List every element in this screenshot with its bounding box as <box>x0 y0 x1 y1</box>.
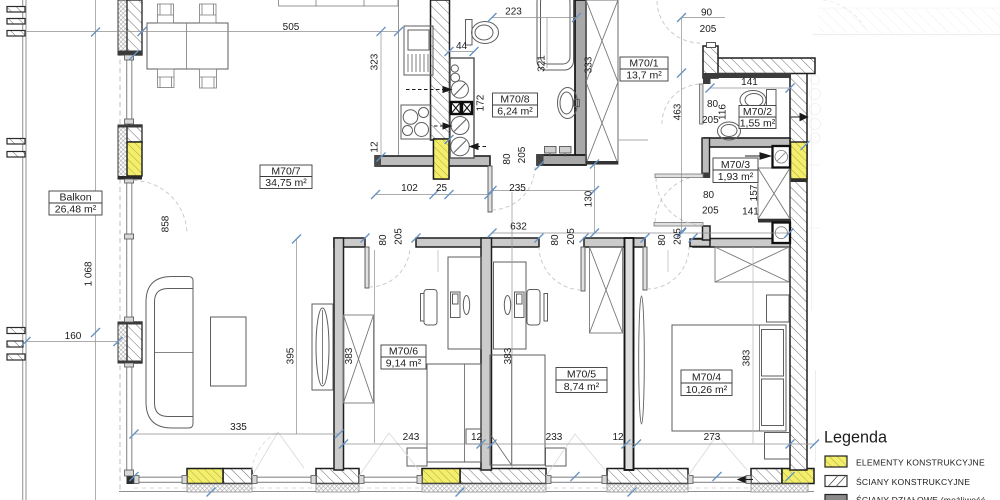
svg-text:205: 205 <box>517 146 528 163</box>
svg-text:M70/6: M70/6 <box>389 346 418 358</box>
svg-text:1,55 m²: 1,55 m² <box>740 118 776 130</box>
svg-text:505: 505 <box>283 22 300 33</box>
svg-text:ELEMENTY KONSTRUKCYJNE: ELEMENTY KONSTRUKCYJNE <box>856 458 985 468</box>
svg-text:9,14 m²: 9,14 m² <box>386 358 422 370</box>
svg-text:M70/1: M70/1 <box>629 58 658 70</box>
svg-text:116: 116 <box>718 104 729 120</box>
svg-text:10,26 m²: 10,26 m² <box>686 384 728 396</box>
svg-text:M70/7: M70/7 <box>271 166 300 178</box>
svg-text:34,75 m²: 34,75 m² <box>265 177 307 189</box>
svg-text:1,93 m²: 1,93 m² <box>718 171 754 183</box>
svg-text:273: 273 <box>704 432 721 443</box>
svg-text:172: 172 <box>476 94 487 111</box>
svg-text:80: 80 <box>550 234 561 246</box>
svg-text:395: 395 <box>286 347 297 364</box>
svg-text:243: 243 <box>403 432 420 443</box>
svg-text:335: 335 <box>230 422 247 433</box>
svg-text:1 068: 1 068 <box>84 261 95 286</box>
svg-text:632: 632 <box>510 222 527 233</box>
svg-text:321: 321 <box>537 55 548 72</box>
svg-text:233: 233 <box>546 432 563 443</box>
svg-text:205: 205 <box>394 228 405 245</box>
svg-text:383: 383 <box>742 349 753 366</box>
svg-text:205: 205 <box>673 228 684 245</box>
svg-text:M70/2: M70/2 <box>743 106 772 118</box>
svg-text:M70/4: M70/4 <box>692 372 721 384</box>
svg-text:44: 44 <box>456 41 468 52</box>
svg-text:6,24 m²: 6,24 m² <box>497 106 533 118</box>
svg-text:80: 80 <box>703 190 715 201</box>
svg-text:Balkon: Balkon <box>59 192 91 204</box>
svg-text:12: 12 <box>612 432 624 443</box>
svg-text:160: 160 <box>65 331 82 342</box>
svg-text:141: 141 <box>741 77 758 88</box>
svg-text:130: 130 <box>584 190 595 207</box>
svg-text:205: 205 <box>566 228 577 245</box>
svg-text:M70/8: M70/8 <box>500 94 529 106</box>
svg-text:383: 383 <box>503 347 514 364</box>
svg-text:M70/5: M70/5 <box>567 369 596 381</box>
svg-text:13,7 m²: 13,7 m² <box>626 70 662 82</box>
svg-text:333: 333 <box>584 56 595 73</box>
svg-text:157: 157 <box>749 184 760 201</box>
svg-text:80: 80 <box>502 153 513 165</box>
svg-text:858: 858 <box>161 215 172 232</box>
svg-text:383: 383 <box>344 347 355 364</box>
svg-text:141: 141 <box>742 207 759 218</box>
svg-text:Legenda: Legenda <box>824 429 887 447</box>
svg-text:323: 323 <box>370 53 381 70</box>
svg-text:235: 235 <box>509 183 526 194</box>
svg-text:463: 463 <box>673 103 684 120</box>
svg-text:223: 223 <box>505 7 522 18</box>
svg-text:80: 80 <box>657 234 668 246</box>
svg-text:ŚCIANY KONSTRUKCYJNE: ŚCIANY KONSTRUKCYJNE <box>856 476 970 487</box>
svg-text:ŚCIANY DZIAŁOWE (możliwość: ŚCIANY DZIAŁOWE (możliwość <box>856 494 986 500</box>
svg-text:205: 205 <box>702 206 719 217</box>
svg-text:205: 205 <box>700 24 717 35</box>
svg-text:26,48 m²: 26,48 m² <box>55 204 97 216</box>
svg-text:102: 102 <box>401 183 418 194</box>
svg-text:M70/3: M70/3 <box>721 159 750 171</box>
svg-text:8,74 m²: 8,74 m² <box>564 381 600 393</box>
svg-text:90: 90 <box>701 8 713 19</box>
svg-text:80: 80 <box>378 234 389 246</box>
svg-text:12: 12 <box>370 141 381 153</box>
svg-text:25: 25 <box>436 183 448 194</box>
svg-text:12: 12 <box>471 432 483 443</box>
